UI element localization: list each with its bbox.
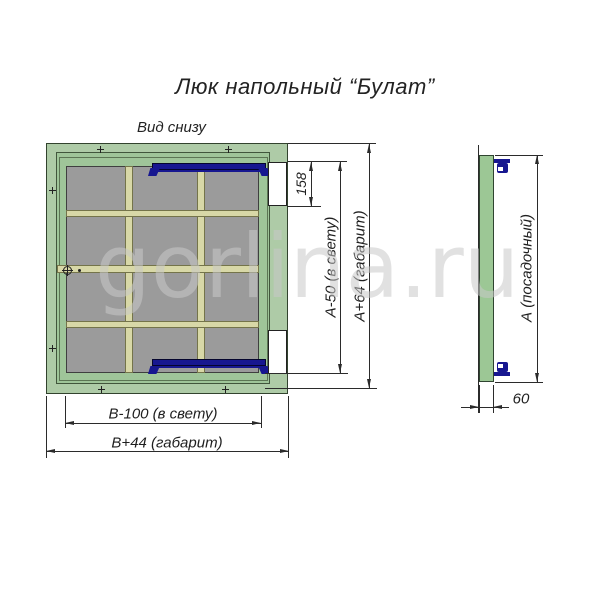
- dim-arrow: [535, 373, 539, 382]
- dim-label-clear-width: В-100 (в свету): [108, 406, 217, 423]
- dim-arrow: [470, 405, 479, 409]
- side-hinge-notch-top: [498, 167, 503, 171]
- hinge-underline-top: [158, 170, 260, 172]
- hinge-underline-bottom: [158, 366, 260, 368]
- ext-line: [479, 385, 480, 413]
- hinge-bar-bottom: [152, 359, 266, 366]
- ext-line: [495, 382, 543, 383]
- dim-label-overall-width: В+44 (габарит): [111, 435, 222, 452]
- dim-arrow: [309, 197, 313, 206]
- dim-line-seat-height: [537, 155, 538, 382]
- hinge-cutout-top: [268, 162, 287, 206]
- rib-horizontal-3: [66, 321, 259, 328]
- dim-arrow: [367, 144, 371, 153]
- screw-mark-icon: [97, 146, 104, 153]
- ext-line: [261, 396, 262, 428]
- dim-arrow: [65, 421, 74, 425]
- dim-arrow: [338, 162, 342, 171]
- ext-line: [288, 143, 376, 144]
- drawing-sheet: gorlina.ru Люк напольный “Булат” Вид сни…: [0, 0, 600, 600]
- dim-line-clear-width: [65, 423, 261, 424]
- center-mark-icon: [63, 266, 72, 275]
- watermark: gorlina.ru: [95, 223, 519, 311]
- dim-label-hinge-cutout: 158: [293, 172, 309, 195]
- page-title: Люк напольный “Булат”: [175, 74, 434, 100]
- dim-arrow: [338, 364, 342, 373]
- dim-label-seat-height: А (посадочный): [519, 214, 536, 322]
- dim-arrow: [252, 421, 261, 425]
- screw-mark-icon: [98, 386, 105, 393]
- screw-mark-icon: [49, 187, 56, 194]
- dim-arrow: [367, 379, 371, 388]
- screw-mark-icon: [49, 345, 56, 352]
- bottom-view-label: Вид снизу: [137, 119, 206, 136]
- ext-line: [265, 388, 377, 389]
- dim-arrow: [280, 449, 289, 453]
- side-hinge-notch-bottom: [498, 364, 503, 368]
- hinge-bar-top: [152, 163, 266, 170]
- hinge-cutout-bottom: [268, 330, 287, 374]
- ext-line: [287, 206, 321, 207]
- side-hinge-bar-bottom: [494, 372, 510, 376]
- ext-line: [265, 373, 348, 374]
- dim-arrow: [493, 405, 502, 409]
- dim-label-thickness: 60: [513, 391, 530, 408]
- dim-arrow: [535, 155, 539, 164]
- dim-arrow: [309, 162, 313, 171]
- screw-mark-icon: [222, 386, 229, 393]
- point-mark-icon: [78, 269, 81, 272]
- screw-mark-icon: [225, 146, 232, 153]
- dim-arrow: [46, 449, 55, 453]
